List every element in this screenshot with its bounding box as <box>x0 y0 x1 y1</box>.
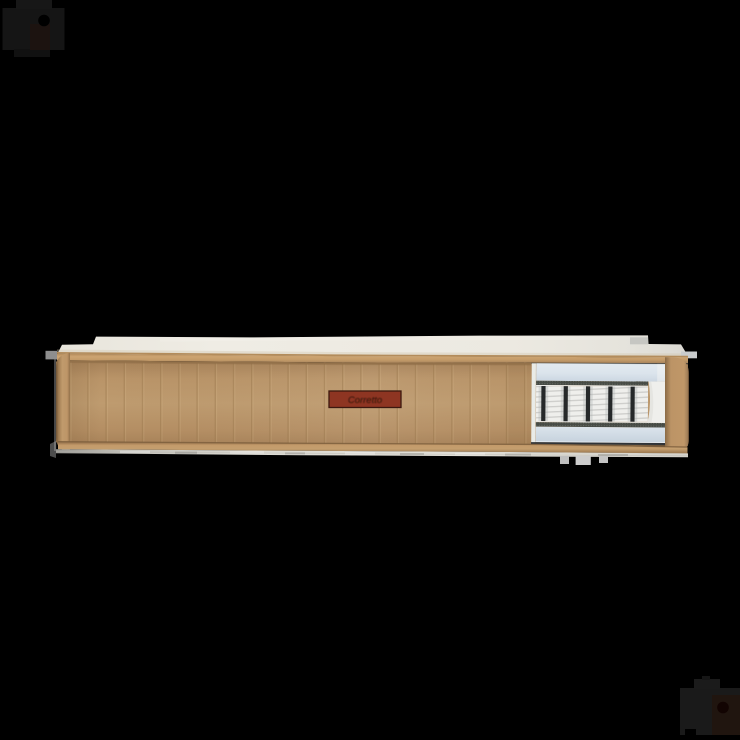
svg-text:Corretto: Corretto <box>348 395 382 406</box>
